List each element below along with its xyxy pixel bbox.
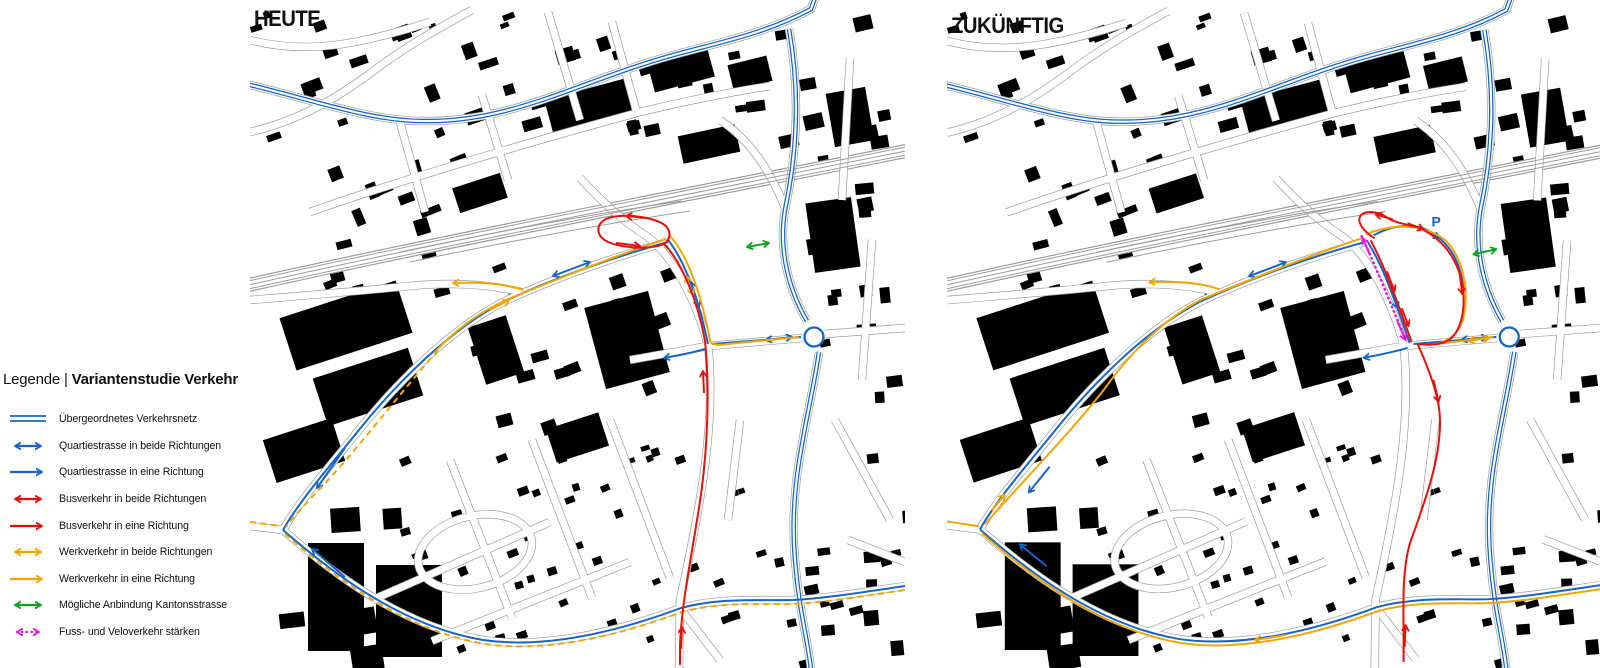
map-heute-canvas (250, 0, 905, 668)
roundabout-icon (805, 328, 824, 347)
legend-item: Quartiestrasse in eine Richtung (0, 459, 248, 486)
double-line-icon (6, 411, 50, 427)
legend-panel: Legende | Variantenstudie Verkehr Überge… (0, 371, 248, 645)
legend-item-label: Werkverkehr in eine Richtung (59, 573, 195, 585)
double-arrow-icon (6, 597, 50, 613)
legend-item-label: Werkverkehr in beide Richtungen (59, 546, 212, 558)
legend-item: Übergeordnetes Verkehrsnetz (0, 406, 248, 433)
map-zukunftig-canvas: P (947, 0, 1600, 668)
legend-item-label: Busverkehr in beide Richtungen (59, 493, 206, 505)
legend-item: Busverkehr in eine Richtung (0, 512, 248, 539)
double-arrow-icon (6, 544, 50, 560)
legend-item: Fuss- und Veloverkehr stärken (0, 619, 248, 646)
legend-item: Busverkehr in beide Richtungen (0, 486, 248, 513)
roundabout-icon (1500, 328, 1519, 347)
legend-item: Mögliche Anbindung Kantonsstrasse (0, 592, 248, 619)
parking-label: P (1432, 213, 1441, 229)
map-zukunftig: ZUKÜNFTIG (947, 0, 1600, 668)
single-arrow-icon (6, 518, 50, 534)
map-title-zukunftig: ZUKÜNFTIG (951, 13, 1064, 39)
legend-item: Quartiestrasse in beide Richtungen (0, 433, 248, 460)
legend-title-prefix: Legende | (3, 371, 72, 388)
double-arrow-icon (6, 438, 50, 454)
single-arrow-icon (6, 571, 50, 587)
legend-item: Werkverkehr in eine Richtung (0, 566, 248, 593)
legend-item-label: Mögliche Anbindung Kantonsstrasse (59, 599, 227, 611)
legend-item-label: Quartiestrasse in beide Richtungen (59, 440, 221, 452)
legend-items: Übergeordnetes Verkehrsnetz Quartiestras… (0, 406, 248, 645)
legend-title: Legende | Variantenstudie Verkehr (0, 371, 248, 388)
dotted-double-arrow-icon (6, 624, 50, 640)
legend-item: Werkverkehr in beide Richtungen (0, 539, 248, 566)
map-title-heute: HEUTE (254, 6, 320, 32)
legend-title-bold: Variantenstudie Verkehr (72, 371, 238, 388)
legend-item-label: Busverkehr in eine Richtung (59, 520, 189, 532)
double-arrow-icon (6, 491, 50, 507)
kantonsstrasse-link (747, 243, 769, 247)
legend-item-label: Fuss- und Veloverkehr stärken (59, 626, 200, 638)
legend-item-label: Übergeordnetes Verkehrsnetz (59, 413, 197, 425)
legend-item-label: Quartiestrasse in eine Richtung (59, 466, 204, 478)
map-heute: HEUTE (250, 0, 905, 668)
single-arrow-icon (6, 464, 50, 480)
velo-route (1362, 236, 1406, 340)
